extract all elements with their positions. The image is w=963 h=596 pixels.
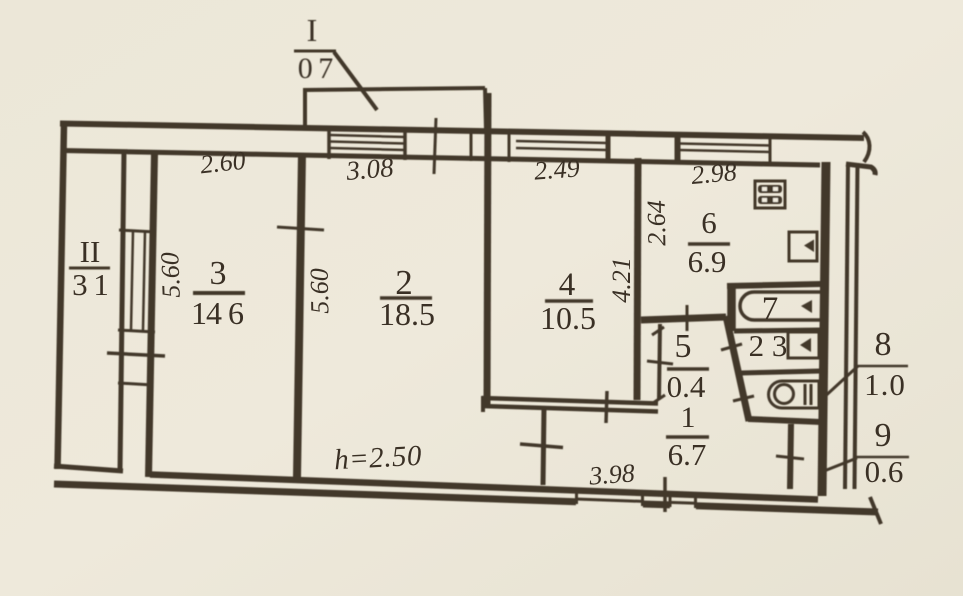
- svg-text:3: 3: [210, 255, 227, 292]
- svg-text:3.98: 3.98: [587, 458, 635, 490]
- svg-text:6.7: 6.7: [668, 437, 707, 472]
- svg-text:5: 5: [675, 328, 692, 365]
- svg-text:6: 6: [701, 205, 717, 240]
- svg-text:I: I: [307, 12, 318, 48]
- svg-text:0 7: 0 7: [298, 52, 334, 85]
- svg-text:10.5: 10.5: [540, 300, 596, 336]
- svg-text:II: II: [80, 234, 101, 269]
- svg-text:5.60: 5.60: [305, 268, 335, 314]
- svg-text:4.21: 4.21: [607, 257, 636, 303]
- svg-text:18.5: 18.5: [379, 296, 435, 332]
- svg-text:4: 4: [559, 267, 576, 303]
- svg-text:3.08: 3.08: [344, 152, 395, 186]
- svg-text:2.98: 2.98: [690, 157, 738, 190]
- svg-text:2.49: 2.49: [533, 153, 580, 185]
- svg-text:h=2.50: h=2.50: [333, 440, 422, 477]
- svg-text:9: 9: [875, 417, 892, 454]
- svg-text:2.60: 2.60: [199, 146, 247, 180]
- svg-text:8: 8: [875, 326, 892, 363]
- svg-text:1.0: 1.0: [864, 367, 906, 402]
- svg-text:2.64: 2.64: [642, 200, 672, 246]
- svg-text:0.4: 0.4: [667, 369, 706, 404]
- svg-text:2 3: 2 3: [749, 328, 788, 363]
- svg-text:14 6: 14 6: [191, 295, 244, 331]
- svg-text:1: 1: [681, 401, 696, 434]
- svg-text:7: 7: [762, 291, 779, 327]
- svg-text:0.6: 0.6: [865, 454, 904, 489]
- svg-text:6.9: 6.9: [688, 244, 727, 279]
- svg-text:3 1: 3 1: [72, 267, 108, 302]
- svg-text:5.60: 5.60: [155, 252, 186, 298]
